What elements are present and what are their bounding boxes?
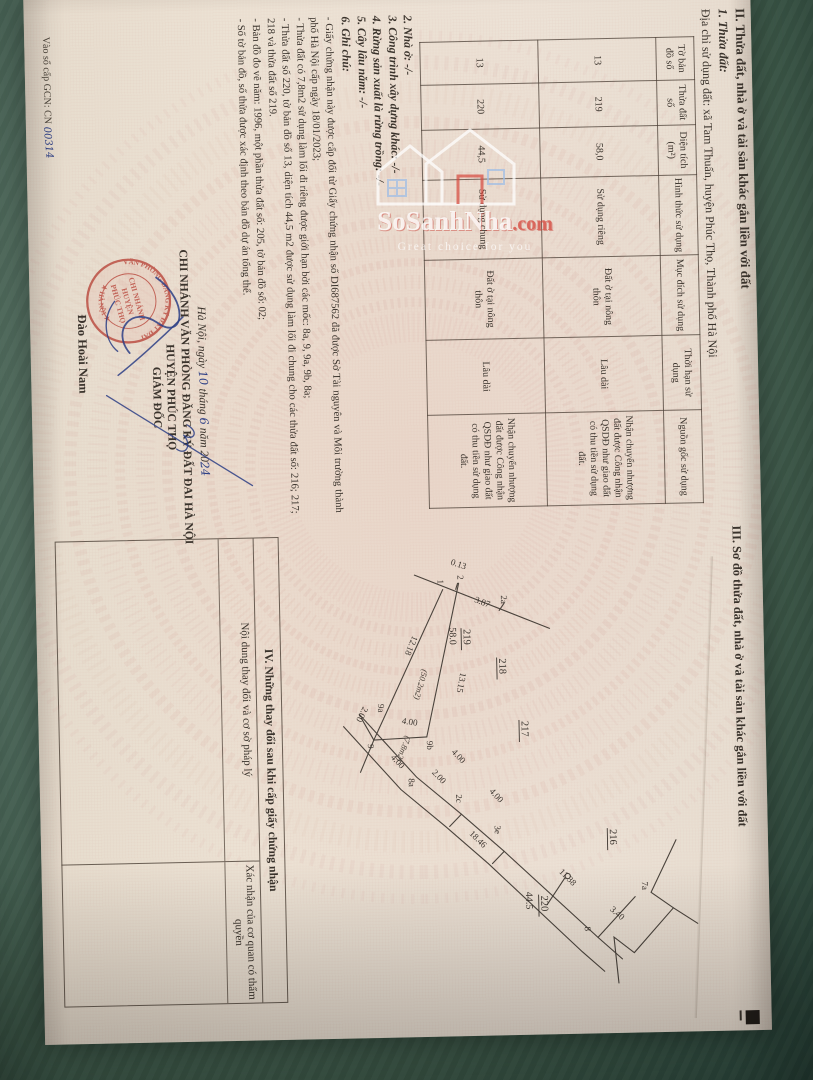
table-row: 13 220 44,5 Sử dụng chung Đất ở tại nông… (420, 40, 548, 508)
diagram-label-parcel: 219 (461, 629, 472, 645)
diagram-label-parcel: 216 (607, 829, 618, 845)
certificate-paper: II. Thửa đất, nhà ở và tài sản khác gắn … (23, 0, 772, 1045)
item-1-label: 1. Thửa đất: (715, 8, 731, 72)
parcel-boundary-lines (340, 569, 699, 988)
cell-use-origin: Nhận chuyển nhượng đất được Công nhận QS… (428, 413, 548, 508)
diagram-label-pt: 3e (493, 825, 503, 834)
cell-area: 58,0 (540, 125, 659, 177)
cell-area: 44,5 (422, 128, 541, 180)
diagram-label-pt: 2c (454, 794, 464, 803)
asset-items-list: 2. Nhà ở: -/- 3. Công trình xây dựng khá… (338, 15, 419, 187)
corner-black-tick (740, 1010, 742, 1020)
diagram-label-dim: 4.00 (401, 716, 419, 728)
cadastral-sketch: 0.133.8712.1813.15(50.2m2)(7.8m2)4.002.0… (283, 521, 720, 1040)
diagram-label-area: (50.2m2) (412, 668, 430, 701)
col-header-use-form: Hình thức sử dụng (659, 175, 699, 256)
handwritten-registry-number: 00314 (41, 126, 55, 159)
col-header-use-origin: Nguồn gốc sử dụng (663, 410, 703, 504)
diagram-label-pt: 9b (425, 741, 435, 751)
table-row: 13 219 58,0 Sử dụng riêng Đất ở tại nông… (538, 37, 666, 505)
diagram-label-dim: 4.00 (450, 747, 468, 766)
diagram-label-dim: 3.40 (608, 904, 627, 922)
diagram-label-dim: 13.15 (455, 672, 469, 694)
diagram-label-dim: 12.18 (403, 634, 420, 657)
diagram-label-pt: 2a (499, 595, 509, 604)
land-parcel-table: Tờ bản đồ số Thửa đất số Diện tích (m²) … (419, 36, 704, 509)
col-header-area: Diện tích (m²) (658, 125, 697, 176)
cell-use-origin: Nhận chuyển nhượng đất được Công nhận QS… (546, 410, 666, 505)
section-4-table: IV. Những thay đổi sau khi cấp giấy chứn… (55, 537, 289, 1008)
diagram-label-sub: 44.5 (523, 892, 534, 910)
signature-ink (70, 220, 261, 514)
diagram-label-pt: 8a (407, 778, 417, 787)
col-header-parcel-no: Thửa đất số (657, 80, 696, 126)
diagram-label-pt: 9 (366, 744, 376, 749)
diagram-label-pt: 2 (455, 575, 465, 580)
diagram-label-pt: 7a (640, 881, 650, 890)
cell-parcel-no: 220 (421, 83, 540, 130)
diagram-label-dim: 2.00 (430, 767, 448, 786)
confirmation-column: Xác nhận của cơ quan có thẩm quyền (61, 860, 262, 1006)
diagram-label-pt: 9a (376, 704, 386, 713)
cell-use-term: Lâu dài (544, 335, 664, 412)
changes-column-header: Nội dung thay đổi và cơ sở pháp lý (218, 539, 260, 862)
section-3-title: III. Sơ đồ thửa đất, nhà ở và tài sản kh… (728, 525, 753, 1005)
cell-use-form: Sử dụng chung (423, 178, 543, 260)
diagram-label-sub: 58.0 (446, 627, 457, 645)
cell-map-sheet: 13 (538, 37, 657, 82)
cell-use-purpose: Đất ở tại nông thôn (542, 255, 662, 337)
photographed-land-certificate: II. Thửa đất, nhà ở và tài sản khác gắn … (0, 0, 813, 1080)
corner-black-mark (746, 1010, 760, 1024)
cell-parcel-no: 219 (539, 80, 658, 127)
diagram-label-dim: 3.87 (473, 594, 492, 609)
diagram-label-dim: 2.00 (354, 705, 370, 724)
diagram-label-pt: 1 (435, 580, 445, 585)
confirmation-column-header: Xác nhận của cơ quan có thẩm quyền (224, 861, 262, 1003)
section-2-title: II. Thửa đất, nhà ở và tài sản khác gắn … (732, 8, 758, 488)
diagram-label-parcel: 217 (518, 721, 529, 737)
diagram-label-dim: 0.13 (450, 557, 469, 572)
cell-use-purpose: Đất ở tại nông thôn (424, 258, 544, 340)
changes-column: Nội dung thay đổi và cơ sở pháp lý (55, 539, 260, 865)
diagram-labels: 0.133.8712.1813.15(50.2m2)(7.8m2)4.002.0… (351, 553, 651, 937)
col-header-map-sheet: Tờ bản đồ số (656, 37, 695, 81)
cell-map-sheet: 13 (420, 40, 539, 85)
cell-use-term: Lâu dài (426, 338, 546, 415)
col-header-use-term: Thời hạn sử dụng (662, 335, 702, 411)
diagram-label-dim: 4.00 (487, 786, 505, 805)
diagram-label-dim: 18.46 (467, 828, 489, 850)
cell-use-form: Sử dụng riêng (541, 175, 661, 257)
signer-name: Đào Hoài Nam (73, 289, 91, 419)
diagram-label-pt: 8 (583, 927, 593, 932)
diagram-label-parcel: 218 (496, 658, 507, 674)
registry-number-line: Vào sổ cấp GCN: CN 00314 (40, 37, 54, 159)
diagram-label-parcel: 220 (538, 895, 549, 911)
col-header-use-purpose: Mục đích sử dụng (660, 255, 700, 336)
